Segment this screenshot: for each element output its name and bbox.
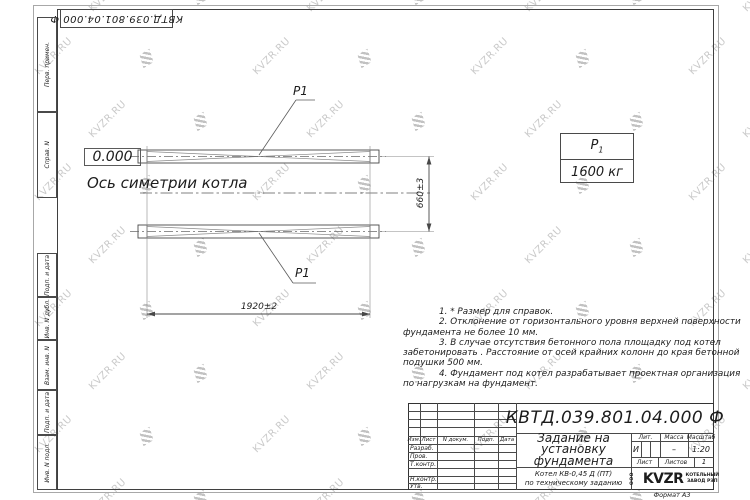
tb-row-tkontr: Т.контр.	[408, 460, 437, 468]
tb-title-line: фундамента	[534, 456, 613, 467]
tb-row-razrab: Разраб.	[408, 444, 437, 452]
tb-massa-value: –	[660, 441, 688, 457]
logo-desc-line: КОТЕЛЬНЫЙ	[685, 473, 719, 478]
tb-massa-label: Масса	[660, 433, 688, 441]
tb-row-nkontr: Н.контр.	[408, 476, 437, 483]
company-logo: ООО KVZR КОТЕЛЬНЫЙ ЗАВОД РЭП	[631, 467, 714, 490]
tb-designation: КВТД.039.801.04.000 Ф	[516, 403, 714, 433]
tb-line	[650, 441, 651, 457]
tb-list-label: Лист	[631, 457, 658, 467]
tb-row-utv: Утв.	[408, 483, 437, 490]
notes-block: 1. * Размер для справок. 2. Отклонение о…	[403, 307, 716, 389]
tb-listov-value: 1	[694, 457, 714, 467]
tb-designation-text: КВТД.039.801.04.000 Ф	[506, 408, 725, 428]
dim-width-value: 1920±2	[212, 302, 306, 312]
part-label-bottom: P1	[295, 266, 310, 280]
note-line: 4. Фундамент под котел разрабатывает про…	[403, 369, 716, 379]
elevation-value: 0.000	[92, 149, 132, 165]
drawing-sheet: KVZR.RUKVZR.RUKVZR.RUKVZR.RUKVZR.RUKVZR.…	[0, 0, 750, 500]
tb-subtitle: Котел КВ-0,45 Д (ПТ) по техническому зад…	[516, 467, 631, 490]
note-line: подушки 500 мм.	[403, 358, 716, 368]
note-line: по нагрузкам на фундамент.	[403, 379, 716, 389]
tb-line	[408, 411, 516, 412]
tb-lit-label: Лит.	[631, 433, 660, 441]
tb-line	[408, 419, 516, 420]
tb-line	[408, 427, 516, 428]
tb-line	[408, 468, 516, 469]
elevation-mark: 0.000	[84, 148, 141, 166]
tb-header-list: Лист	[420, 436, 437, 444]
note-line: 1. * Размер для справок.	[403, 307, 716, 317]
tb-listov-label: Листов	[658, 457, 694, 467]
tb-subtitle-line: по техническому заданию	[525, 479, 622, 488]
tb-scale-label: Масштаб	[688, 433, 714, 441]
note-line: забетонировать . Расстояние от осей край…	[403, 348, 716, 358]
tb-header-izm: Изм.	[408, 436, 420, 444]
load-value-cell: 1600 кг	[561, 160, 633, 184]
logo-ooo-text: ООО	[630, 472, 635, 485]
note-line: 2. Отклонение от горизонтального уровня …	[403, 317, 716, 327]
load-symbol-cell: P1	[561, 134, 633, 160]
tb-scale-value: 1:20	[688, 441, 714, 457]
axis-label: Ось симетрии котла	[87, 174, 247, 192]
load-value: 1600 кг	[571, 165, 623, 180]
format-label: Формат А3	[630, 491, 714, 499]
tb-lit-value: И	[631, 441, 641, 457]
logo-desc-text: КОТЕЛЬНЫЙ ЗАВОД РЭП	[685, 473, 719, 483]
tb-header-data: Дата	[498, 436, 516, 444]
logo-name-text: KVZR	[643, 471, 684, 487]
tb-row-prov: Пров.	[408, 452, 437, 460]
part-label-top: P1	[293, 84, 308, 98]
tb-subtitle-line: Котел КВ-0,45 Д (ПТ)	[535, 470, 612, 479]
load-table: P1 1600 кг	[560, 133, 634, 183]
logo-desc-line: ЗАВОД РЭП	[685, 479, 719, 484]
tb-line	[641, 441, 642, 457]
tb-title: Задание на установку фундамента	[516, 433, 631, 467]
tb-header-podp: Подп.	[474, 436, 498, 444]
tb-header-ndok: N докум.	[437, 436, 474, 444]
note-line: фундамента не более 10 мм.	[403, 328, 716, 338]
note-line: 3. В случае отсутствия бетонного пола пл…	[403, 338, 716, 348]
dim-height-value: 660±3	[416, 171, 426, 215]
load-symbol-sub: 1	[598, 146, 603, 155]
